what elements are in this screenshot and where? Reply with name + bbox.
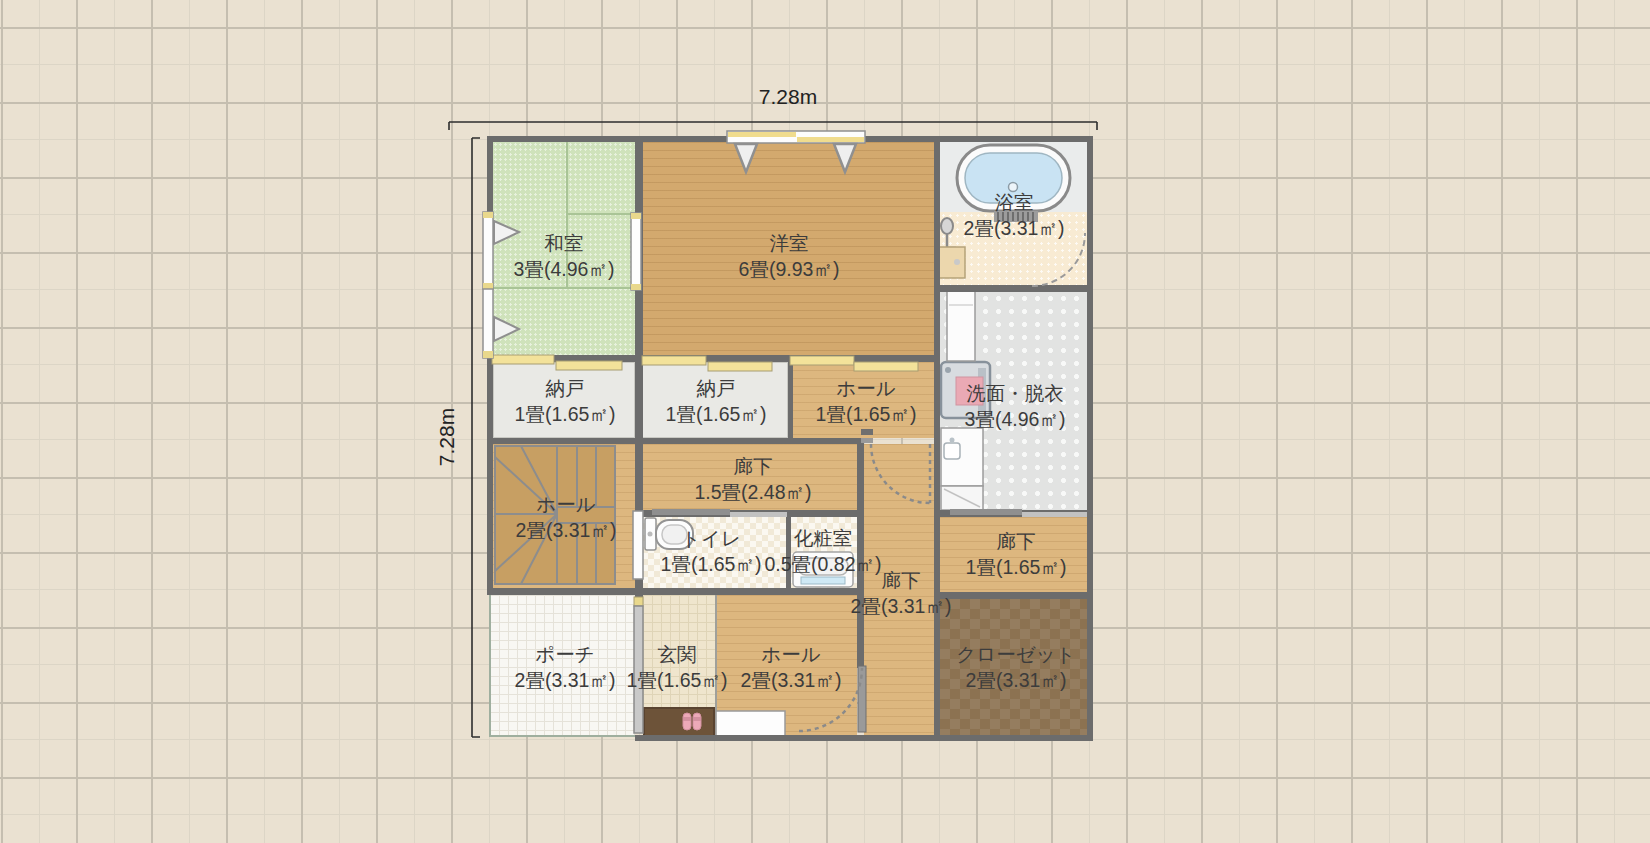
washbasin-vanity[interactable]: [941, 428, 983, 510]
room-name: ポーチ: [515, 641, 616, 667]
room-name: 廊下: [966, 528, 1067, 554]
linen-cabinet[interactable]: [947, 291, 975, 361]
room-size: 3畳(4.96㎡): [514, 256, 615, 282]
dimension-width-label: 7.28m: [759, 85, 817, 109]
room-size: 2畳(3.31㎡): [741, 667, 842, 693]
dimension-height-label: 7.28m: [435, 408, 459, 466]
room-label-nando-2: 納戸1畳(1.65㎡): [666, 375, 767, 427]
room-name: 洗面・脱衣: [965, 380, 1066, 406]
sliding-door-washitsu-east[interactable]: [631, 213, 641, 290]
room-size: 1.5畳(2.48㎡): [694, 479, 811, 505]
room-label-hall-stairs: ホール2畳(3.31㎡): [516, 491, 617, 543]
room-size: 2畳(3.31㎡): [516, 517, 617, 543]
door-arc-corridor-top[interactable]: [861, 429, 930, 503]
room-name: 納戸: [515, 375, 616, 401]
room-size: 1畳(1.65㎡): [661, 551, 762, 577]
room-size: 2畳(3.31㎡): [956, 667, 1075, 693]
room-label-youshitsu: 洋室6畳(9.93㎡): [739, 230, 840, 282]
room-label-porch: ポーチ2畳(3.31㎡): [515, 641, 616, 693]
room-label-senmen-datsui: 洗面・脱衣3畳(4.96㎡): [965, 380, 1066, 432]
room-name: ホール: [516, 491, 617, 517]
room-name: 化粧室: [764, 525, 881, 551]
entrance-mat[interactable]: [644, 708, 714, 737]
room-size: 2畳(3.31㎡): [515, 667, 616, 693]
room-name: 玄関: [627, 641, 728, 667]
room-label-rouka-center: 廊下1.5畳(2.48㎡): [694, 453, 811, 505]
room-label-rouka-vertical: 廊下2畳(3.31㎡): [851, 567, 952, 619]
room-name: 納戸: [666, 375, 767, 401]
room-size: 1畳(1.65㎡): [515, 401, 616, 427]
sliding-door-stairs-east[interactable]: [633, 511, 643, 579]
room-name: 洋室: [739, 230, 840, 256]
room-size: 1畳(1.65㎡): [666, 401, 767, 427]
room-size: 1畳(1.65㎡): [966, 554, 1067, 580]
room-label-genkan: 玄関1畳(1.65㎡): [627, 641, 728, 693]
room-size: 3畳(4.96㎡): [965, 406, 1066, 432]
room-size: 1畳(1.65㎡): [627, 667, 728, 693]
room-name: トイレ: [661, 525, 762, 551]
room-name: 廊下: [851, 567, 952, 593]
floorplan-canvas[interactable]: 和室3畳(4.96㎡)洋室6畳(9.93㎡)浴室2畳(3.31㎡)納戸1畳(1.…: [0, 0, 1650, 843]
room-name: ホール: [816, 375, 917, 401]
room-name: クローゼット: [956, 641, 1075, 667]
room-size: 1畳(1.65㎡): [816, 401, 917, 427]
room-size: 2畳(3.31㎡): [964, 215, 1065, 241]
room-label-rouka-east: 廊下1畳(1.65㎡): [966, 528, 1067, 580]
room-label-hall-south: ホール2畳(3.31㎡): [741, 641, 842, 693]
shoe-cabinet[interactable]: [716, 711, 785, 737]
room-label-hall-north: ホール1畳(1.65㎡): [816, 375, 917, 427]
room-name: 廊下: [694, 453, 811, 479]
room-label-closet: クローゼット2畳(3.31㎡): [956, 641, 1075, 693]
room-size: 2畳(3.31㎡): [851, 593, 952, 619]
room-label-washitsu: 和室3畳(4.96㎡): [514, 230, 615, 282]
shower-fixture[interactable]: [937, 218, 965, 278]
room-name: 和室: [514, 230, 615, 256]
room-name: ホール: [741, 641, 842, 667]
window-youshitsu-north[interactable]: [727, 131, 865, 143]
room-label-toilet: トイレ1畳(1.65㎡): [661, 525, 762, 577]
room-label-yokushitsu: 浴室2畳(3.31㎡): [964, 189, 1065, 241]
room-name: 浴室: [964, 189, 1065, 215]
wall-shelf-brackets[interactable]: [735, 144, 856, 172]
room-label-nando-1: 納戸1畳(1.65㎡): [515, 375, 616, 427]
room-size: 6畳(9.93㎡): [739, 256, 840, 282]
